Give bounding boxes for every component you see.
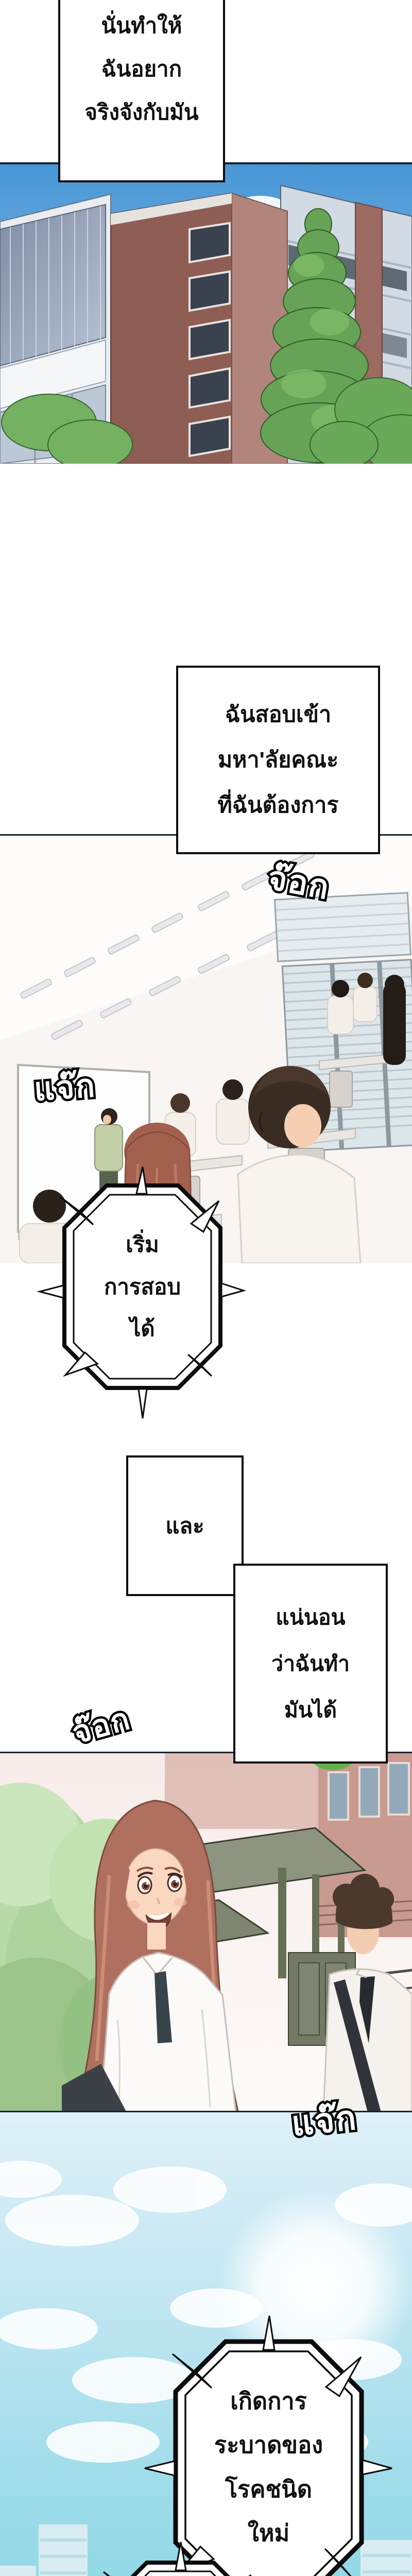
bubble-line: นั่นทำให้: [101, 4, 182, 47]
bubble-line: จริงจังกับมัน: [84, 91, 198, 134]
panel-street: [0, 1752, 412, 2112]
broadcast-bubble-exam-start: เริ่ม การสอบ ได้: [61, 1182, 224, 1391]
panel-building-exterior: [0, 162, 412, 464]
speech-bubble-and: และ: [126, 1455, 244, 1596]
broadcast-text: เกิดการ ระบาดของ โรคชนิด ใหม่: [171, 2337, 366, 2576]
speech-bubble-resolve: นั่นทำให้ ฉันอยาก จริงจังกับมัน: [58, 0, 225, 182]
comic-page: นั่นทำให้ ฉันอยาก จริงจังกับมัน ฉันสอบเข…: [0, 0, 412, 2576]
bubble-line: ฉันอยาก: [101, 47, 182, 91]
bubble-line: มันได้: [284, 1687, 337, 1733]
sfx-tick: จ๊อก: [264, 851, 334, 913]
bubble-line: ที่ฉันต้องการ: [217, 783, 338, 828]
bubble-line: ฉันสอบเข้า: [225, 692, 331, 737]
sfx-scratch: แจ๊ก: [32, 1060, 97, 1115]
broadcast-text: ขอให้ ประชาชน ไม่ออกมา ข้างนอก: [106, 2560, 255, 2576]
bubble-line: แน่นอน: [276, 1594, 345, 1640]
broadcast-bubble-outbreak: เกิดการ ระบาดของ โรคชนิด ใหม่: [171, 2337, 366, 2576]
broadcast-text: เริ่ม การสอบ ได้: [61, 1182, 224, 1391]
speech-bubble-certain: แน่นอน ว่าฉันทำ มันได้: [233, 1564, 388, 1764]
bubble-line: และ: [165, 1504, 204, 1548]
sfx-tick: จ๊อก: [66, 1694, 136, 1757]
speech-bubble-university: ฉันสอบเข้า มหา'ลัยคณะ ที่ฉันต้องการ: [176, 666, 380, 854]
sfx-scratch: แจ๊ก: [289, 2091, 359, 2151]
bubble-line: ว่าฉันทำ: [271, 1640, 350, 1687]
building-brick: [111, 193, 287, 464]
broadcast-bubble-stay-inside: ขอให้ ประชาชน ไม่ออกมา ข้างนอก: [106, 2560, 255, 2576]
student-long-hair: [383, 975, 406, 1065]
bubble-line: มหา'ลัยคณะ: [218, 737, 338, 783]
